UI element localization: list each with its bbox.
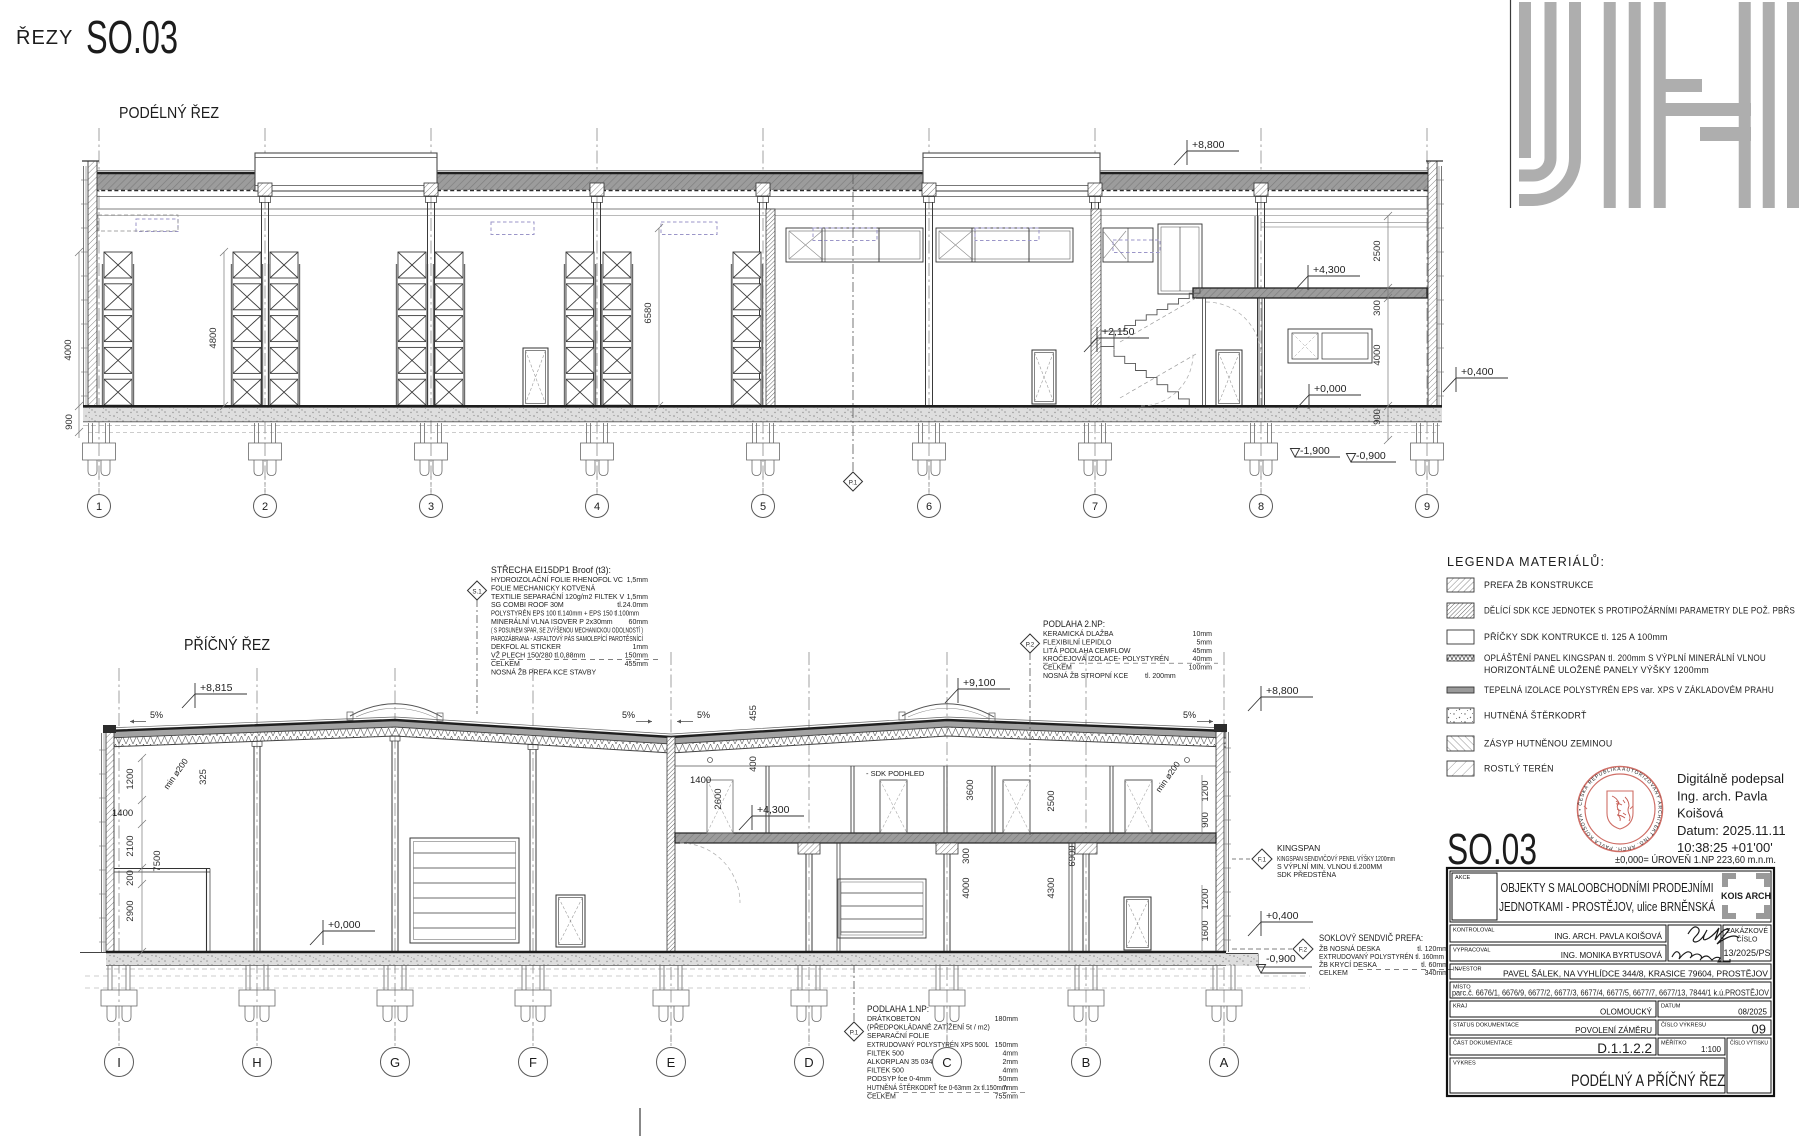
svg-text:ŽB NOSNÁ DESKA: ŽB NOSNÁ DESKA [1319,944,1381,953]
svg-text:HORIZONTÁLNĚ ULOŽENÉ PANELY VÝ: HORIZONTÁLNĚ ULOŽENÉ PANELY VÝŠKY 1200mm [1484,665,1709,675]
svg-text:-1,900: -1,900 [1300,445,1330,457]
svg-text:STŘECHA EI15DP1 Broof (t3):: STŘECHA EI15DP1 Broof (t3): [491,565,611,576]
svg-text:DEKFOL AL STICKER: DEKFOL AL STICKER [491,644,561,651]
svg-text:+4,300: +4,300 [1313,264,1346,276]
svg-text:455: 455 [748,705,759,721]
svg-text:I: I [117,1055,121,1070]
svg-text:PODSYP fce 0-4mm: PODSYP fce 0-4mm [867,1076,931,1083]
svg-text:2mm: 2mm [1002,1059,1018,1066]
svg-text:tl. 200mm: tl. 200mm [1145,673,1176,680]
svg-text:180mm: 180mm [995,1016,1019,1023]
svg-text:- SDK PODHLED: - SDK PODHLED [866,769,925,778]
svg-text:40mm: 40mm [1193,656,1213,663]
svg-text:9: 9 [1424,501,1430,513]
svg-text:60mm: 60mm [629,619,649,626]
svg-text:1:100: 1:100 [1701,1045,1722,1054]
svg-text:7mm: 7mm [1002,1085,1018,1092]
svg-text:+0,000: +0,000 [328,919,361,931]
svg-text:755mm: 755mm [995,1093,1019,1100]
svg-text:JEDNOTKAMI - PROSTĚJOV, ulice: JEDNOTKAMI - PROSTĚJOV, ulice BRNĚNSKÁ [1499,899,1715,914]
svg-text:SEPARAČNÍ FOLIE: SEPARAČNÍ FOLIE [867,1031,929,1040]
svg-text:MINERÁLNÍ VLNA ISOVER P 2x30mm: MINERÁLNÍ VLNA ISOVER P 2x30mm [491,617,613,626]
svg-text:parc.č. 6676/1, 6676/9, 667: parc.č. 6676/1, 6676/9, 6677/2, 6677/3, … [1452,989,1770,998]
svg-text:C: C [942,1055,951,1070]
svg-text:6: 6 [926,501,932,513]
svg-text:POVOLENÍ ZÁMĚRU: POVOLENÍ ZÁMĚRU [1575,1026,1652,1035]
svg-text:PAVEL ŠÁLEK, NA VYHLÍDCE 3: PAVEL ŠÁLEK, NA VYHLÍDCE 344/8, KRASICE … [1503,970,1769,979]
svg-text:+0,400: +0,400 [1461,366,1494,378]
svg-text:13/2025/PS: 13/2025/PS [1723,948,1770,958]
svg-text:PODÉLNÝ A PŘÍČNÝ ŘEZ: PODÉLNÝ A PŘÍČNÝ ŘEZ [1571,1071,1725,1090]
svg-text:4300: 4300 [1046,877,1057,898]
svg-text:ČÍSLO: ČÍSLO [1736,935,1758,944]
svg-text:2: 2 [262,501,268,513]
svg-text:OLOMOUCKÝ: OLOMOUCKÝ [1600,1008,1653,1017]
svg-text:+0,400: +0,400 [1266,910,1299,922]
svg-text:1,5mm: 1,5mm [627,594,649,601]
svg-text:900: 900 [1372,409,1383,425]
svg-text:5%: 5% [697,710,710,720]
svg-text:3600: 3600 [965,779,976,800]
svg-text:10:38:25 +01'00': 10:38:25 +01'00' [1677,840,1773,855]
svg-text:LITÁ PODLAHA CEMFLOW: LITÁ PODLAHA CEMFLOW [1043,646,1131,655]
svg-text:D: D [804,1055,813,1070]
svg-text:7500: 7500 [152,850,163,871]
svg-text:PODLAHA 2.NP:: PODLAHA 2.NP: [1043,619,1105,630]
svg-text:INVESTOR: INVESTOR [1453,967,1482,973]
svg-text:ČÍSLO VÝKRESU: ČÍSLO VÝKRESU [1661,1022,1706,1029]
svg-text:MĚŘÍTKO: MĚŘÍTKO [1661,1039,1687,1047]
svg-text:325: 325 [198,769,209,785]
svg-text:455mm: 455mm [625,661,649,668]
svg-text:1: 1 [96,501,102,513]
svg-text:D.1.1.2.2: D.1.1.2.2 [1597,1041,1652,1056]
svg-text:CELKEM: CELKEM [491,661,520,668]
svg-text:STATUS DOKUMENTACE: STATUS DOKUMENTACE [1453,1023,1519,1029]
svg-text:P.2: P.2 [1026,641,1035,648]
svg-text:300: 300 [1372,300,1383,316]
svg-text:5: 5 [760,501,766,513]
svg-text:4000: 4000 [961,877,972,898]
svg-text:ZÁSYP HUTNĚNOU ZEMINOU: ZÁSYP HUTNĚNOU ZEMINOU [1484,739,1612,749]
svg-text:1400: 1400 [690,775,711,786]
svg-text:SDK PŘEDSTĚNA: SDK PŘEDSTĚNA [1277,870,1336,879]
svg-text:E: E [667,1055,676,1070]
svg-text:4000: 4000 [63,339,74,360]
svg-text:SG COMBI ROOF 30M: SG COMBI ROOF 30M [491,602,564,609]
svg-text:4mm: 4mm [1002,1050,1018,1057]
svg-text:tl. 120mm: tl. 120mm [1417,946,1448,953]
svg-text:VŽ PLECH 150/280 tl.0,88mm: VŽ PLECH 150/280 tl.0,88mm [491,651,585,660]
svg-text:P.1: P.1 [850,1029,859,1036]
svg-text:PREFA ŽB KONSTRUKCE: PREFA ŽB KONSTRUKCE [1484,580,1593,590]
svg-text:FOLIE MECHANICKY KOTVENÁ: FOLIE MECHANICKY KOTVENÁ [491,583,595,592]
svg-text:ING. ARCH. PAVLA KOIŠOVÁ: ING. ARCH. PAVLA KOIŠOVÁ [1554,932,1662,941]
svg-text:+8,815: +8,815 [200,682,233,694]
svg-text:8: 8 [1258,501,1264,513]
svg-text:KROČEJOVÁ IZOLACE- POLYSTYRÉN: KROČEJOVÁ IZOLACE- POLYSTYRÉN [1043,654,1169,663]
svg-text:150mm: 150mm [995,1042,1019,1049]
svg-text:2500: 2500 [1372,240,1383,261]
svg-text:3: 3 [428,501,434,513]
svg-text:1,5mm: 1,5mm [627,577,649,584]
svg-text:ŽB KRYCÍ DESKA: ŽB KRYCÍ DESKA [1319,960,1377,969]
svg-text:1mm: 1mm [632,644,648,651]
svg-text:200: 200 [125,870,136,886]
svg-text:PŘÍČKY SDK KONTRUKCE tl. 125 A: PŘÍČKY SDK KONTRUKCE tl. 125 A 100mm [1484,632,1668,642]
svg-text:PODÉLNÝ ŘEZ: PODÉLNÝ ŘEZ [119,105,219,122]
svg-text:OBJEKTY S MALOOBCHODNÍMI PRODE: OBJEKTY S MALOOBCHODNÍMI PRODEJNÍMI [1501,880,1714,895]
svg-text:ČÁST DOKUMENTACE: ČÁST DOKUMENTACE [1453,1040,1513,1047]
svg-text:PŘÍČNÝ ŘEZ: PŘÍČNÝ ŘEZ [184,637,270,654]
svg-text:400: 400 [748,756,759,772]
svg-text:150mm: 150mm [625,653,649,660]
svg-text:+0,000: +0,000 [1314,383,1347,395]
svg-text:PAROZÁBRANA - ASFALTOVÝ PÁS SA: PAROZÁBRANA - ASFALTOVÝ PÁS SAMOLEPÍCÍ P… [491,634,643,643]
svg-text:HYDROIZOLAČNÍ FOLIE RHENOFOL V: HYDROIZOLAČNÍ FOLIE RHENOFOL VC [491,575,623,584]
svg-text:KERAMICKÁ DLAŽBA: KERAMICKÁ DLAŽBA [1043,629,1114,638]
svg-text:H: H [252,1055,261,1070]
svg-text:tl. 60mm: tl. 60mm [1421,962,1448,969]
svg-text:2600: 2600 [713,788,724,809]
svg-text:+9,100: +9,100 [963,677,996,689]
svg-text:B: B [1082,1055,1091,1070]
svg-text:ZAKÁZKOVÉ: ZAKÁZKOVÉ [1726,926,1768,935]
svg-text:F.1: F.1 [1258,857,1267,864]
svg-text:4800: 4800 [208,327,219,348]
svg-text:1400: 1400 [112,808,133,819]
svg-text:KONTROLOVAL: KONTROLOVAL [1453,928,1495,934]
svg-text:10mm: 10mm [1193,631,1213,638]
svg-text:SO.03: SO.03 [1447,825,1537,874]
svg-text:FILTEK 500: FILTEK 500 [867,1068,904,1075]
svg-text:( S POSUNEM SPAR, SE ZVÝŠENOU: ( S POSUNEM SPAR, SE ZVÝŠENOU MECHANICKO… [491,625,643,634]
svg-text:7: 7 [1092,501,1098,513]
svg-text:CELKEM: CELKEM [1319,970,1348,977]
svg-text:±0,000= ÚROVEŇ 1.NP 223,60: ±0,000= ÚROVEŇ 1.NP 223,60 m.n.m. [1615,853,1776,866]
svg-text:PODLAHA 1.NP:: PODLAHA 1.NP: [867,1004,929,1015]
svg-text:NOSNÁ ŽB STROPNÍ KCE: NOSNÁ ŽB STROPNÍ KCE [1043,671,1129,680]
svg-text:TEPELNÁ IZOLACE POLYSTYRÉN EPS: TEPELNÁ IZOLACE POLYSTYRÉN EPS var. XPS … [1484,685,1774,695]
svg-text:DRÁTKOBETON: DRÁTKOBETON [867,1014,920,1023]
svg-text:OPLÁŠTĚNÍ PANEL KINGSPAN tl. 2: OPLÁŠTĚNÍ PANEL KINGSPAN tl. 200mm S VÝP… [1484,653,1766,663]
svg-text:LEGENDA MATERIÁLŮ:: LEGENDA MATERIÁLŮ: [1447,554,1605,569]
svg-text:50mm: 50mm [999,1076,1019,1083]
svg-text:(PŘEDPOKLÁDANÉ ZATÍŽENÍ 5t / m: (PŘEDPOKLÁDANÉ ZATÍŽENÍ 5t / m2) [867,1023,990,1032]
svg-text:+8,800: +8,800 [1266,685,1299,697]
svg-text:5%: 5% [150,710,163,720]
svg-text:300: 300 [961,848,972,864]
svg-text:FLEXIBILNÍ LEPIDLO: FLEXIBILNÍ LEPIDLO [1043,637,1112,646]
svg-text:Digitálně podepsal: Digitálně podepsal [1677,771,1784,786]
svg-text:F: F [529,1055,537,1070]
svg-text:SOKLOVÝ SENDVIČ PREFA:: SOKLOVÝ SENDVIČ PREFA: [1319,933,1423,944]
svg-text:5%: 5% [1183,710,1196,720]
svg-text:VYPRACOVAL: VYPRACOVAL [1453,948,1491,954]
svg-text:SO.03: SO.03 [86,11,178,63]
svg-text:KRAJ: KRAJ [1453,1004,1468,1010]
svg-text:EXTRUDOVANÝ POLYSTYRÉN tl. 160: EXTRUDOVANÝ POLYSTYRÉN tl. 160mm [1319,952,1444,961]
svg-text:S VÝPLNÍ MIN. VLNOU tl.200MM: S VÝPLNÍ MIN. VLNOU tl.200MM [1277,862,1382,871]
svg-text:340mm: 340mm [1425,970,1449,977]
svg-text:AKCE: AKCE [1455,875,1471,881]
svg-text:DATUM: DATUM [1661,1004,1681,1010]
svg-text:TEXTILIE SEPARAČNÍ 120g/m2 FIL: TEXTILIE SEPARAČNÍ 120g/m2 FILTEK V [491,592,625,601]
svg-text:2100: 2100 [125,835,136,856]
svg-text:100mm: 100mm [1189,665,1213,672]
svg-text:2500: 2500 [1046,790,1057,811]
svg-text:08/2025: 08/2025 [1738,1008,1767,1017]
svg-text:HUTNĚNÁ ŠTĚRKODRŤ: HUTNĚNÁ ŠTĚRKODRŤ [1484,711,1587,721]
svg-text:Koišová: Koišová [1677,806,1724,821]
svg-text:KOIS ARCH: KOIS ARCH [1721,891,1771,901]
svg-text:G: G [390,1055,400,1070]
svg-text:ČÍSLO VÝTISKU: ČÍSLO VÝTISKU [1730,1040,1768,1047]
svg-text:+2,150: +2,150 [1102,326,1135,338]
svg-text:2900: 2900 [125,900,136,921]
svg-text:tl.24.0mm: tl.24.0mm [617,602,648,609]
svg-text:ING. MONIKA BYRTUSOVÁ: ING. MONIKA BYRTUSOVÁ [1561,951,1663,960]
svg-text:900: 900 [64,414,75,430]
svg-text:KINGSPAN: KINGSPAN [1277,843,1320,853]
svg-text:6900: 6900 [1067,845,1078,866]
svg-text:+4,300: +4,300 [757,804,790,816]
svg-text:NOSNÁ ŽB PREFA KCE STAVBY: NOSNÁ ŽB PREFA KCE STAVBY [491,667,596,676]
svg-text:09: 09 [1752,1022,1766,1037]
svg-text:-0,900: -0,900 [1266,953,1296,965]
svg-text:ALKORPLAN 35 034: ALKORPLAN 35 034 [867,1059,932,1066]
svg-text:6580: 6580 [643,302,654,323]
svg-text:+8,800: +8,800 [1192,139,1225,151]
svg-text:ŘEZY: ŘEZY [16,26,73,49]
svg-text:ROSTLÝ TERÉN: ROSTLÝ TERÉN [1484,764,1554,774]
svg-text:F.2: F.2 [1299,947,1308,954]
svg-text:Datum: 2025.11.11: Datum: 2025.11.11 [1677,823,1786,838]
svg-text:45mm: 45mm [1193,648,1213,655]
svg-text:4000: 4000 [1372,344,1383,365]
svg-text:FILTEK 500: FILTEK 500 [867,1050,904,1057]
svg-text:A: A [1220,1055,1229,1070]
svg-text:EXTRUDOVANÝ POLYSTYRÉN XPS 500: EXTRUDOVANÝ POLYSTYRÉN XPS 500L [867,1040,989,1049]
svg-text:CELKEM: CELKEM [1043,665,1072,672]
svg-text:DĚLÍCÍ SDK KCE JEDNOTEK S PROT: DĚLÍCÍ SDK KCE JEDNOTEK S PROTIPOŽÁRNÍMI… [1484,606,1795,616]
svg-text:4mm: 4mm [1002,1068,1018,1075]
svg-text:1200: 1200 [125,768,136,789]
svg-text:KINGSPAN SENDVIČOVÝ PENEL VÝŠK: KINGSPAN SENDVIČOVÝ PENEL VÝŠKY 1200mm [1277,854,1395,863]
svg-text:HUTNĚNÁ ŠTĚRKODRŤ fce 0-63mm: HUTNĚNÁ ŠTĚRKODRŤ fce 0-63mm 2x tl.150mm [867,1083,1007,1092]
svg-text:Ing. arch. Pavla: Ing. arch. Pavla [1677,788,1768,803]
svg-text:5mm: 5mm [1196,639,1212,646]
svg-text:5%: 5% [622,710,635,720]
svg-text:-0,900: -0,900 [1356,450,1386,462]
svg-text:S.1: S.1 [472,588,482,595]
svg-text:VÝKRES: VÝKRES [1453,1060,1476,1067]
svg-text:P.1: P.1 [849,479,858,486]
svg-text:4: 4 [594,501,600,513]
svg-text:CELKEM: CELKEM [867,1093,896,1100]
svg-text:POLYSTYRÉN EPS 100 tl.140mm +: POLYSTYRÉN EPS 100 tl.140mm + EPS 150 tl… [491,609,639,618]
